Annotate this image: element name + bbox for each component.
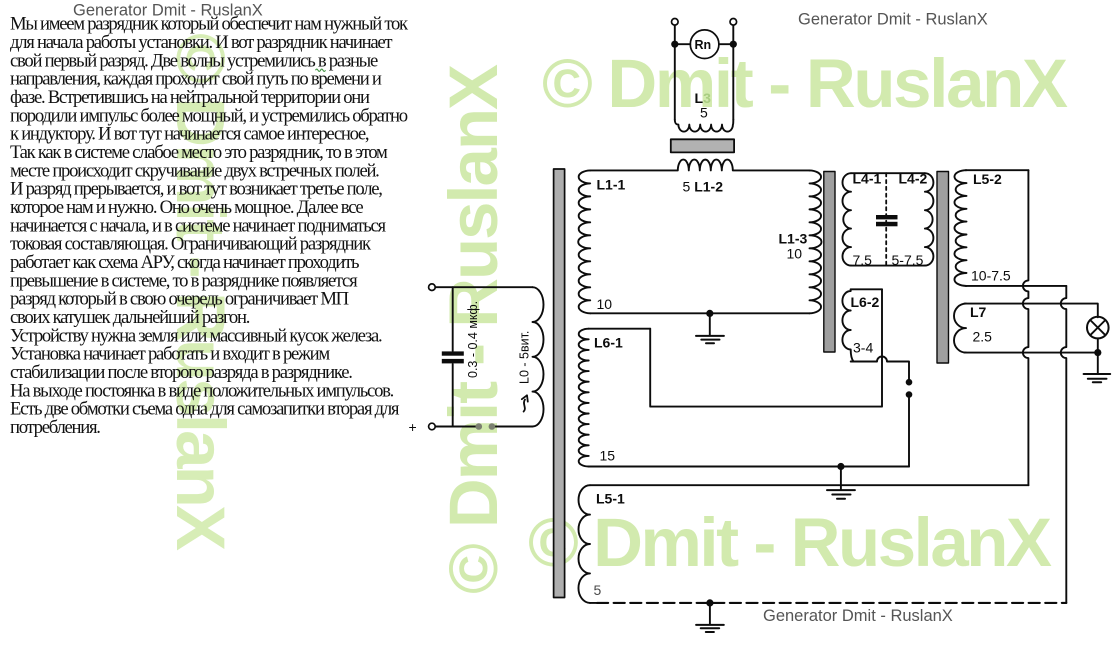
svg-text:L6-2: L6-2 <box>851 294 880 310</box>
svg-text:L4-1: L4-1 <box>853 171 882 187</box>
svg-text:15: 15 <box>600 448 616 464</box>
svg-text:7.5: 7.5 <box>853 252 873 268</box>
svg-text:Generator Dmit - RuslanX: Generator Dmit - RuslanX <box>798 11 988 29</box>
svg-text:L0 - 5вит.: L0 - 5вит. <box>518 331 532 384</box>
svg-text:5-7.5: 5-7.5 <box>892 252 924 268</box>
svg-text:10: 10 <box>787 246 803 262</box>
svg-text:L5-2: L5-2 <box>973 171 1002 187</box>
svg-text:L1-1: L1-1 <box>597 177 626 193</box>
svg-text:3-4: 3-4 <box>853 340 873 356</box>
svg-text:потребления.: потребления. <box>10 417 100 438</box>
svg-text:+: + <box>409 419 417 435</box>
svg-text:Generator Dmit - RuslanX: Generator Dmit - RuslanX <box>763 607 953 625</box>
svg-text:L7: L7 <box>970 304 987 320</box>
svg-text:10: 10 <box>597 296 613 312</box>
svg-text:© Dmit - RuslanX: © Dmit - RuslanX <box>542 45 1068 122</box>
svg-text:L1-3: L1-3 <box>779 231 808 247</box>
svg-text:2.5: 2.5 <box>973 329 993 345</box>
svg-text:5: 5 <box>700 105 708 121</box>
svg-text:L6-1: L6-1 <box>594 335 623 351</box>
svg-text:L5-1: L5-1 <box>596 491 625 507</box>
svg-text:5: 5 <box>594 582 602 598</box>
svg-text:Rn: Rn <box>695 38 712 52</box>
svg-text:© Dmit - RuslanX: © Dmit - RuslanX <box>528 504 1052 581</box>
svg-text:5 L1-2: 5 L1-2 <box>683 179 724 195</box>
svg-text:10-7.5: 10-7.5 <box>971 268 1011 284</box>
svg-text:L4-2: L4-2 <box>899 171 928 187</box>
svg-text:0.3 - 0.4 мкф.: 0.3 - 0.4 мкф. <box>466 301 480 378</box>
